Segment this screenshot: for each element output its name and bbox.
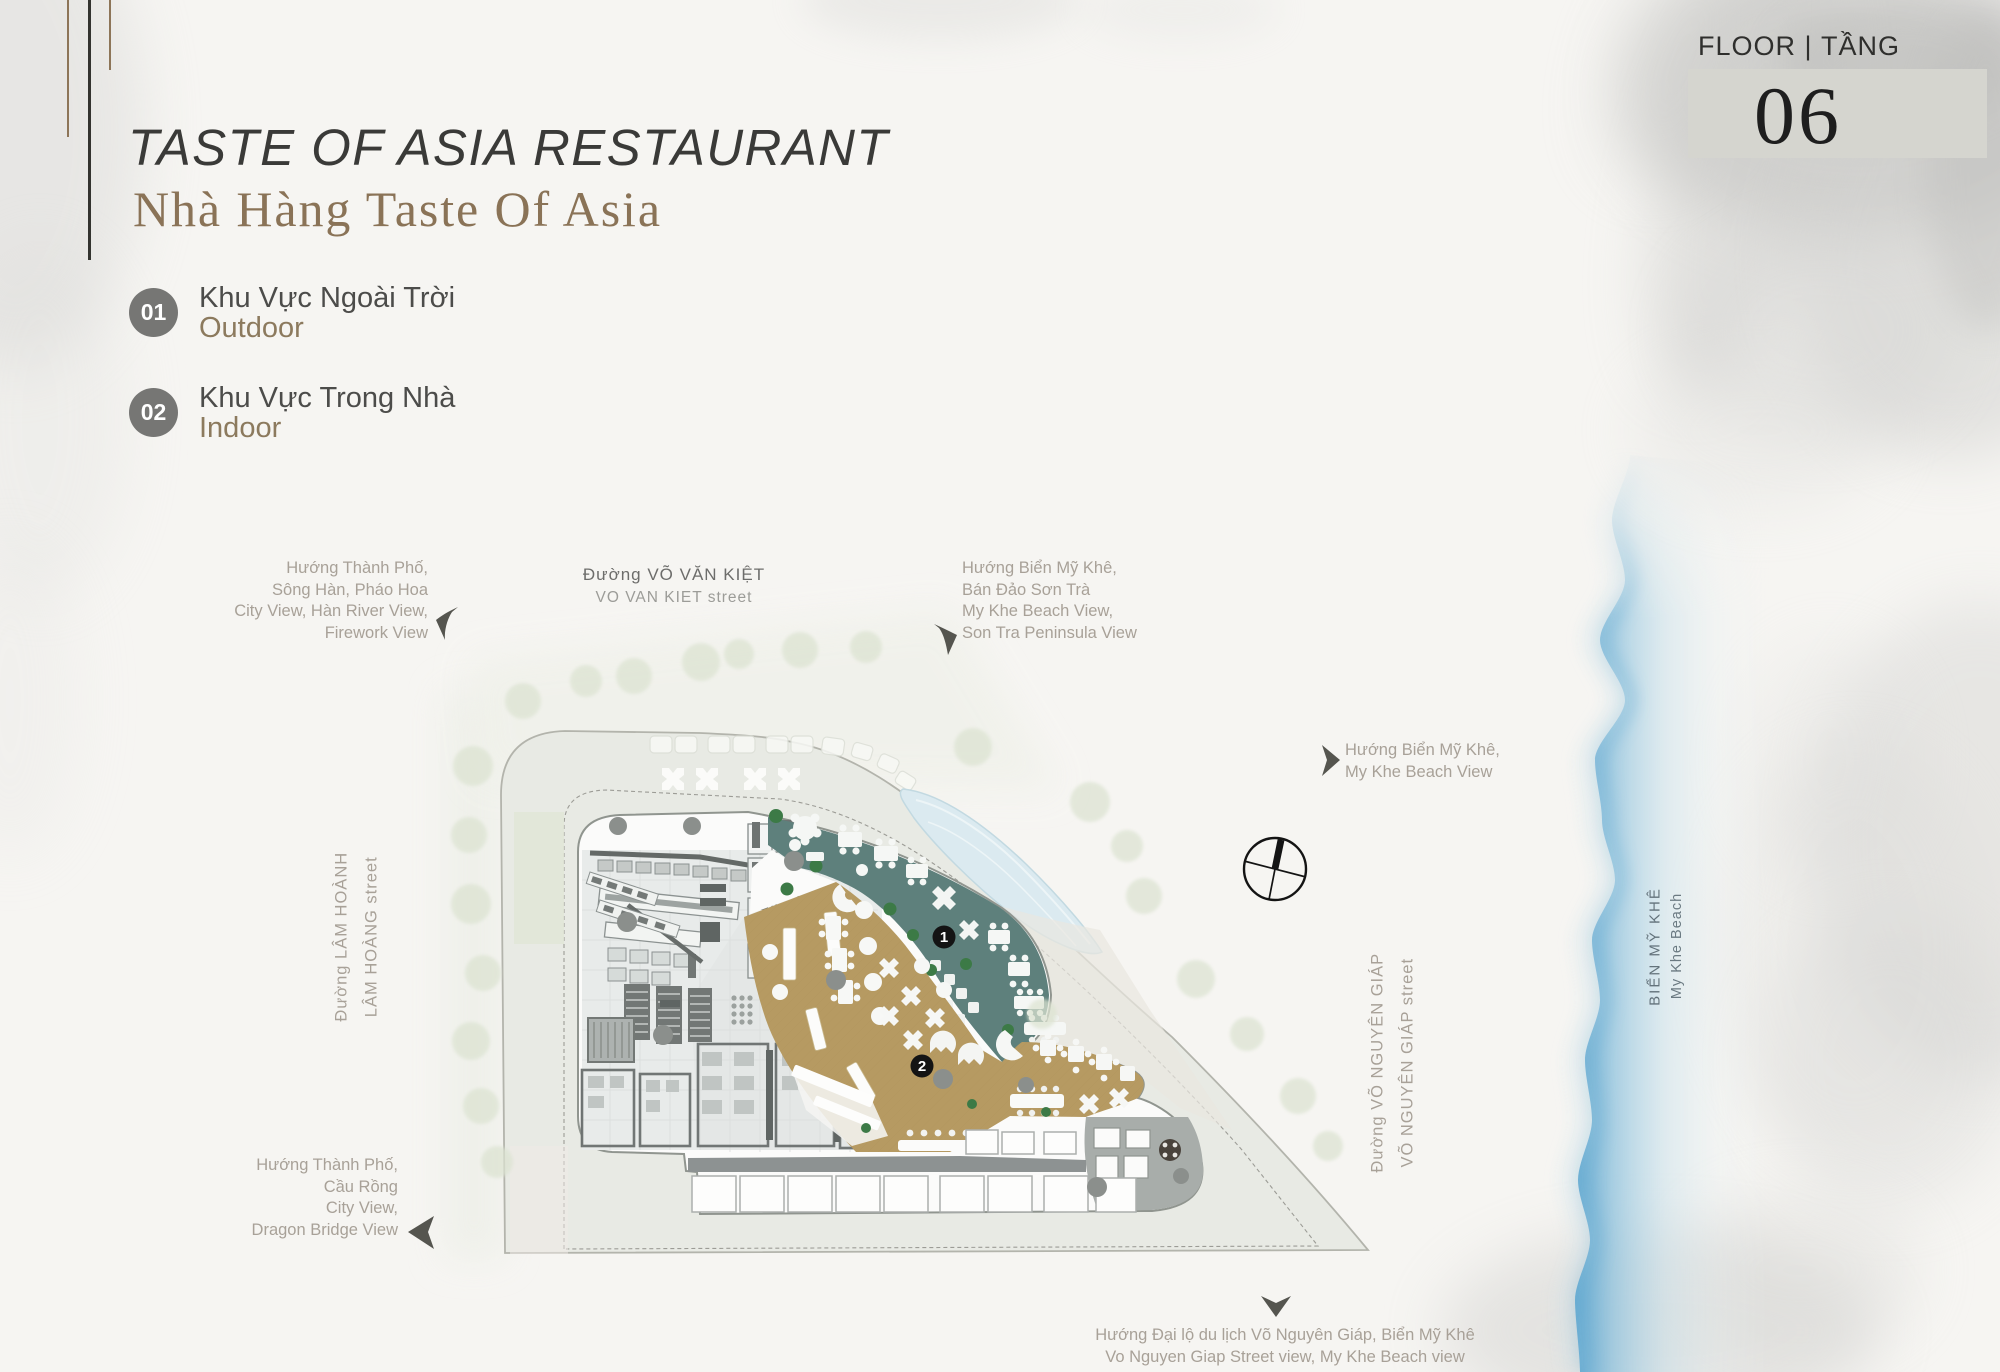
svg-text:1: 1 [940,929,948,946]
svg-text:2: 2 [918,1058,926,1075]
